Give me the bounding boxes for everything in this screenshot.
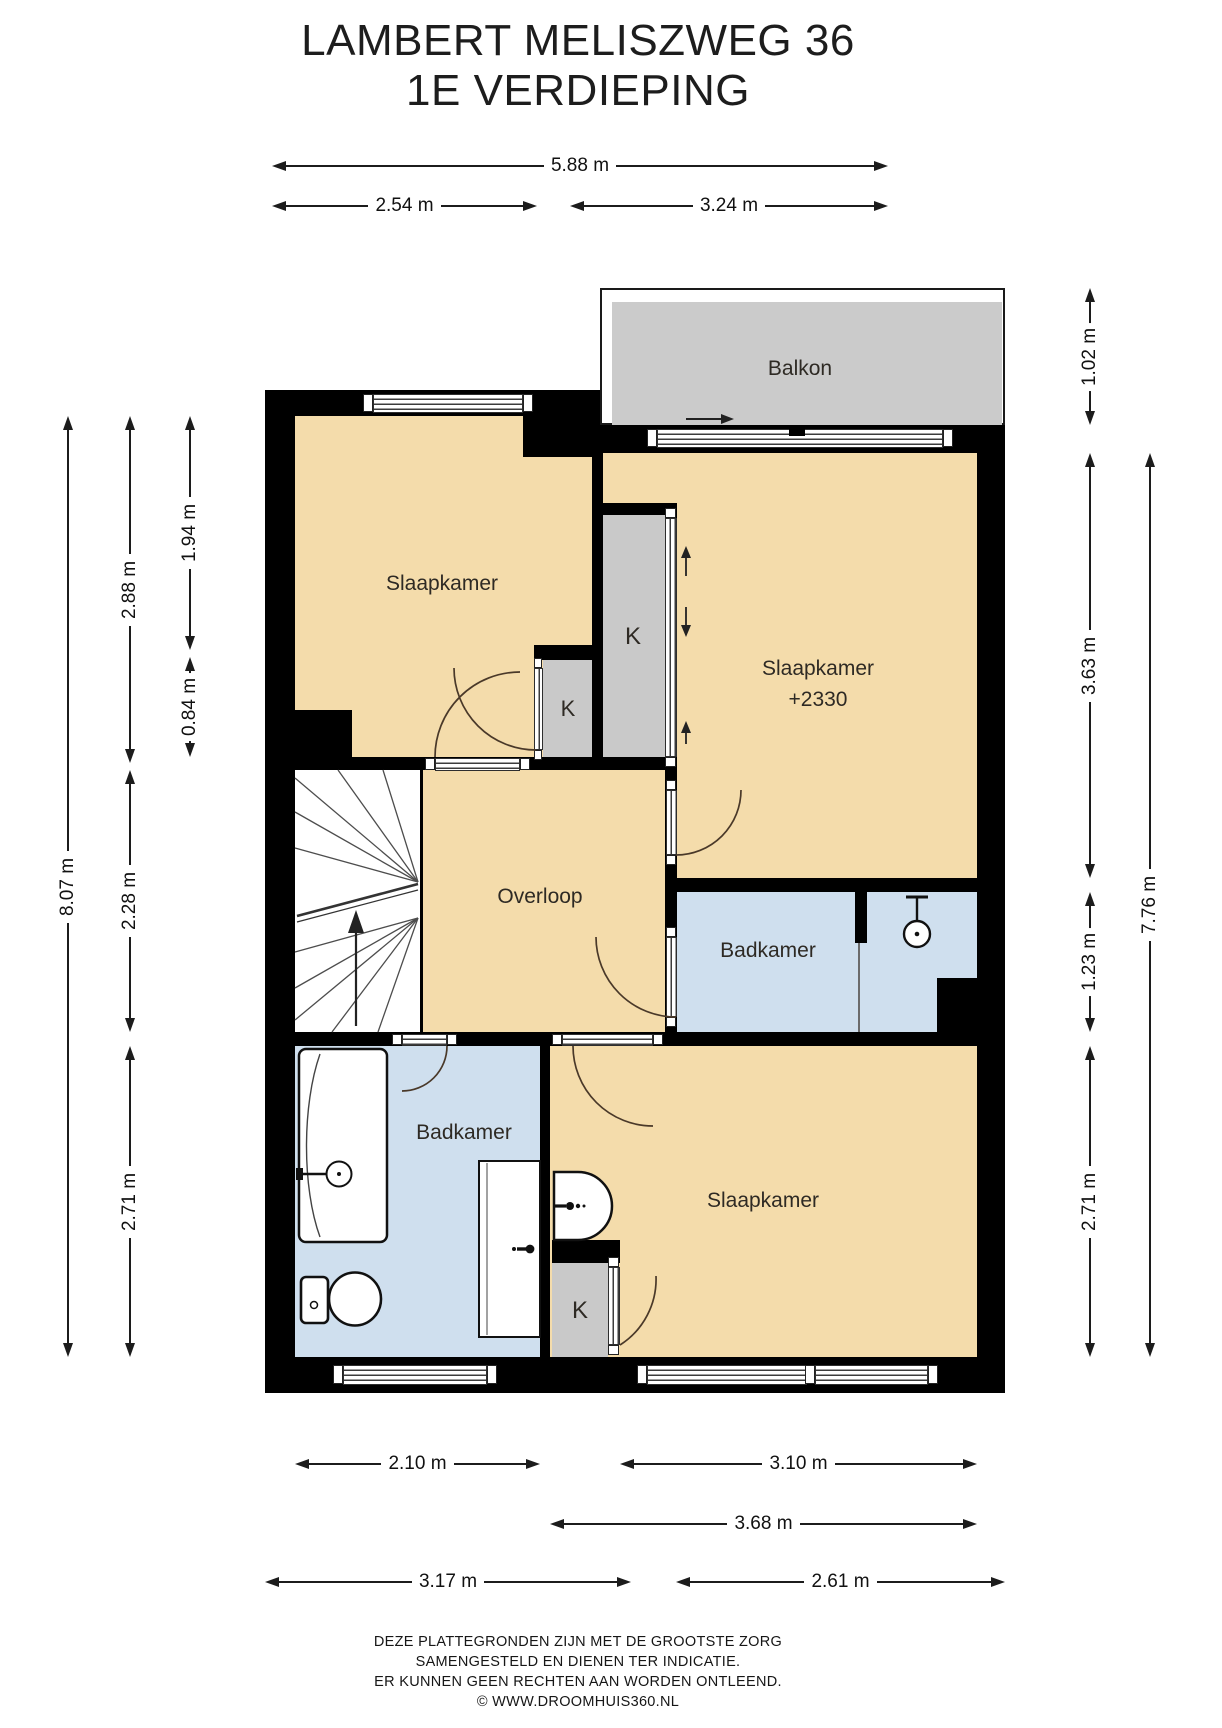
dim-right-total: 7.76 m <box>1139 453 1161 1357</box>
dim-left-bathroom: 2.71 m <box>119 1046 141 1357</box>
door-arcs <box>402 668 741 1345</box>
bathtub-icon <box>296 1049 387 1242</box>
dim-bottom-bathroom: 2.10 m <box>295 1456 540 1472</box>
footer-line-3: ER KUNNEN GEEN RECHTEN AAN WORDEN ONTLEE… <box>374 1672 782 1692</box>
dim-left-inner-upper-value: 1.94 m <box>178 499 202 567</box>
dim-right-total-value: 7.76 m <box>1138 871 1162 939</box>
shower-icon <box>859 897 930 1032</box>
dim-top-left: 2.54 m <box>272 198 537 214</box>
dim-bottom-bedroom-value: 3.10 m <box>762 1453 834 1475</box>
dim-right-balcony: 1.02 m <box>1079 288 1101 425</box>
dim-right-bathroom: 1.23 m <box>1079 892 1101 1032</box>
dim-top-right-value: 3.24 m <box>693 195 765 217</box>
dim-bottom-right-total: 2.61 m <box>676 1574 1005 1590</box>
dim-left-total: 8.07 m <box>57 416 79 1357</box>
dim-bottom-bedroom-full: 3.68 m <box>550 1516 977 1532</box>
footer-line-2: SAMENGESTELD EN DIENEN TER INDICATIE. <box>374 1652 782 1672</box>
dim-right-balcony-value: 1.02 m <box>1078 322 1102 390</box>
toilet-icon <box>301 1273 381 1326</box>
dim-bottom-left-total-value: 3.17 m <box>412 1571 484 1593</box>
dim-right-bathroom-value: 1.23 m <box>1078 928 1102 996</box>
dim-left-total-value: 8.07 m <box>56 852 80 920</box>
dim-right-bedroom-bottom: 2.71 m <box>1079 1046 1101 1357</box>
dim-left-bedroom-value: 2.88 m <box>118 555 142 623</box>
footer-disclaimer: DEZE PLATTEGRONDEN ZIJN MET DE GROOTSTE … <box>374 1632 782 1712</box>
dim-bottom-right-total-value: 2.61 m <box>804 1571 876 1593</box>
closet-slide-arrows <box>681 546 691 744</box>
dim-left-inner-lower-value: 0.84 m <box>178 673 202 741</box>
dim-top-left-value: 2.54 m <box>368 195 440 217</box>
vanity-icon <box>479 1161 540 1337</box>
dim-left-landing-value: 2.28 m <box>118 867 142 935</box>
dim-left-inner-upper: 1.94 m <box>179 416 201 650</box>
dim-left-bathroom-value: 2.71 m <box>118 1167 142 1235</box>
dim-bottom-bedroom-full-value: 3.68 m <box>727 1513 799 1535</box>
dim-right-bedroom-value: 3.63 m <box>1078 631 1102 699</box>
dim-left-landing: 2.28 m <box>119 770 141 1032</box>
footer-line-1: DEZE PLATTEGRONDEN ZIJN MET DE GROOTSTE … <box>374 1632 782 1652</box>
dim-top-total: 5.88 m <box>272 158 888 174</box>
dim-left-inner-lower: 0.84 m <box>179 657 201 757</box>
floorplan-page: LAMBERT MELISZWEG 36 1E VERDIEPING Balko… <box>0 0 1222 1728</box>
dim-top-total-value: 5.88 m <box>544 155 616 177</box>
dim-bottom-left-total: 3.17 m <box>265 1574 631 1590</box>
dim-right-bedroom: 3.63 m <box>1079 453 1101 878</box>
dim-left-bedroom: 2.88 m <box>119 416 141 763</box>
balcony-slide-arrow <box>686 414 734 424</box>
dim-right-bedroom-bottom-value: 2.71 m <box>1078 1167 1102 1235</box>
footer-line-4: © WWW.DROOMHUIS360.NL <box>374 1692 782 1712</box>
dim-bottom-bedroom: 3.10 m <box>620 1456 977 1472</box>
plan-linework <box>0 0 1222 1728</box>
dim-bottom-bathroom-value: 2.10 m <box>381 1453 453 1475</box>
washbasin-icon <box>554 1172 612 1240</box>
dim-top-right: 3.24 m <box>570 198 888 214</box>
